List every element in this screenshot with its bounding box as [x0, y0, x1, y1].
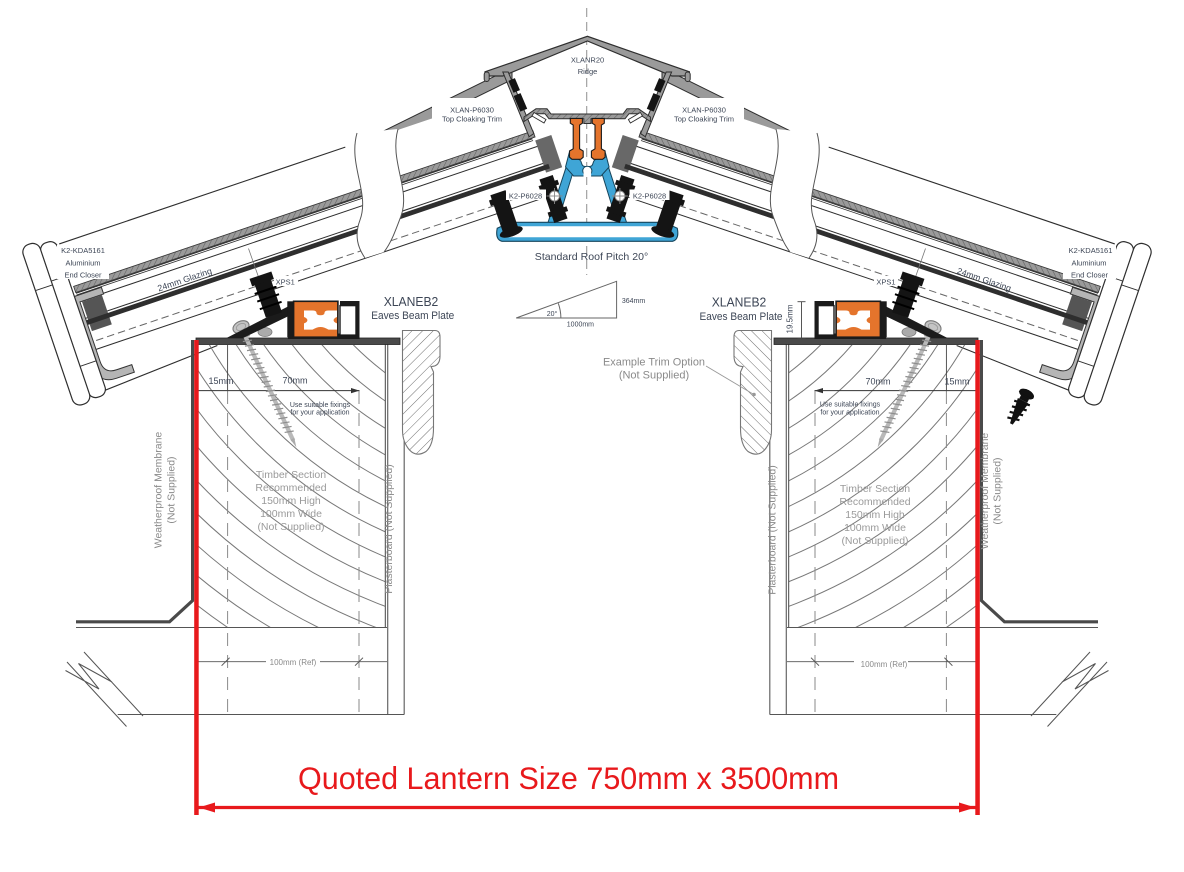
svg-text:100mm (Ref): 100mm (Ref): [861, 660, 908, 669]
svg-text:364mm: 364mm: [622, 298, 646, 305]
svg-text:(Not Supplied): (Not Supplied): [619, 369, 689, 381]
svg-text:70mm: 70mm: [865, 377, 890, 387]
svg-text:End Closer: End Closer: [1071, 271, 1109, 280]
svg-text:Weatherproof Membrane: Weatherproof Membrane: [153, 432, 165, 549]
svg-text:100mm Wide: 100mm Wide: [260, 508, 322, 520]
svg-text:Quoted Lantern Size 750mm x 35: Quoted Lantern Size 750mm x 3500mm: [298, 760, 839, 796]
svg-text:(Not Supplied): (Not Supplied): [841, 535, 908, 547]
svg-text:XPS1: XPS1: [276, 277, 295, 286]
svg-text:Use suitable fixings: Use suitable fixings: [820, 402, 881, 409]
svg-text:XLANR20: XLANR20: [571, 56, 604, 65]
svg-text:150mm High: 150mm High: [261, 495, 321, 507]
svg-text:XLANEB2: XLANEB2: [384, 295, 439, 309]
svg-text:XPS1: XPS1: [876, 277, 895, 286]
svg-text:15mm: 15mm: [944, 377, 969, 387]
svg-text:(Not Supplied): (Not Supplied): [257, 521, 324, 533]
svg-text:Plasterboard (Not Supplied): Plasterboard (Not Supplied): [383, 464, 395, 594]
svg-text:Timber Section: Timber Section: [256, 469, 326, 481]
svg-text:100mm Wide: 100mm Wide: [844, 522, 906, 534]
svg-text:Eaves Beam Plate: Eaves Beam Plate: [700, 311, 783, 323]
svg-text:K2-P6028: K2-P6028: [509, 191, 542, 200]
svg-text:for your application: for your application: [820, 410, 879, 417]
svg-text:Ridge: Ridge: [578, 67, 598, 76]
svg-text:Example Trim Option: Example Trim Option: [603, 356, 705, 368]
svg-text:K2-KDA5161: K2-KDA5161: [61, 246, 105, 255]
svg-text:Aluminium: Aluminium: [65, 258, 100, 267]
svg-text:(Not Supplied): (Not Supplied): [166, 456, 178, 523]
svg-text:1000mm: 1000mm: [567, 321, 594, 328]
svg-text:K2-KDA5161: K2-KDA5161: [1069, 246, 1113, 255]
svg-text:70mm: 70mm: [282, 376, 307, 386]
svg-text:150mm High: 150mm High: [845, 509, 905, 521]
svg-text:XLAN-P6030: XLAN-P6030: [682, 105, 726, 114]
svg-text:Standard Roof Pitch 20°: Standard Roof Pitch 20°: [535, 251, 648, 263]
svg-text:XLANEB2: XLANEB2: [712, 296, 767, 310]
svg-text:Weatherproof Membrane: Weatherproof Membrane: [979, 433, 991, 550]
svg-text:Timber Section: Timber Section: [840, 483, 910, 495]
svg-text:Aluminium: Aluminium: [1071, 258, 1106, 267]
svg-text:20°: 20°: [547, 310, 558, 318]
svg-text:(Not Supplied): (Not Supplied): [992, 457, 1004, 524]
svg-text:XLAN-P6030: XLAN-P6030: [450, 105, 494, 114]
svg-text:Top Cloaking Trim: Top Cloaking Trim: [674, 114, 734, 123]
svg-text:Eaves Beam Plate: Eaves Beam Plate: [371, 310, 454, 322]
svg-text:15mm: 15mm: [208, 376, 233, 386]
svg-text:Use suitable fixings: Use suitable fixings: [290, 402, 351, 409]
svg-text:Recommended: Recommended: [255, 482, 326, 494]
svg-text:K2-P6028: K2-P6028: [633, 191, 666, 200]
svg-text:19.5mm: 19.5mm: [786, 304, 795, 333]
svg-text:End Closer: End Closer: [64, 271, 102, 280]
svg-text:100mm (Ref): 100mm (Ref): [270, 658, 317, 667]
svg-text:Plasterboard (Not Supplied): Plasterboard (Not Supplied): [767, 465, 779, 595]
svg-text:Recommended: Recommended: [839, 496, 910, 508]
svg-text:for your application: for your application: [290, 410, 349, 417]
svg-text:Top Cloaking Trim: Top Cloaking Trim: [442, 114, 502, 123]
